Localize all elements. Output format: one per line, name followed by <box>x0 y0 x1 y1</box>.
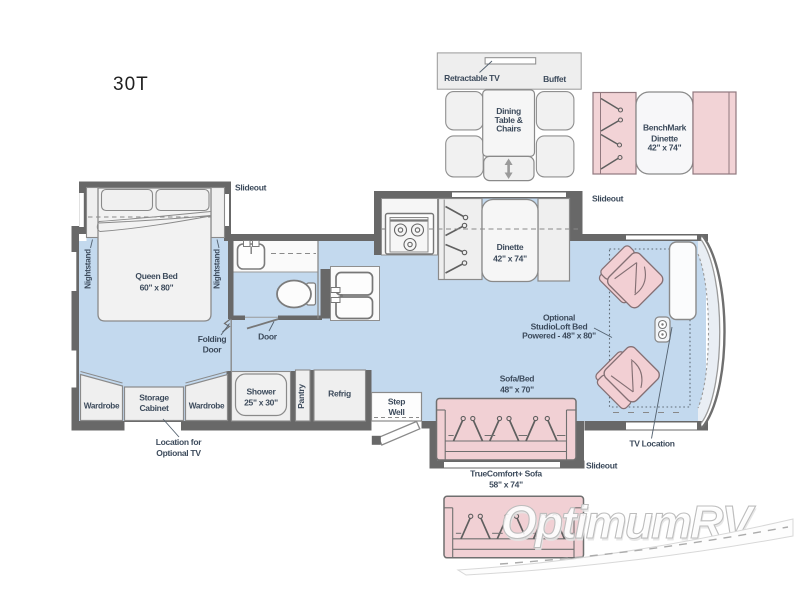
svg-text:25" x 30": 25" x 30" <box>244 398 278 408</box>
svg-text:Powered - 48" x 80": Powered - 48" x 80" <box>522 331 596 341</box>
svg-text:Storage: Storage <box>139 393 169 403</box>
svg-text:Folding: Folding <box>198 334 227 344</box>
svg-text:Door: Door <box>203 345 223 355</box>
svg-text:Location for: Location for <box>156 437 202 447</box>
svg-text:Slideout: Slideout <box>586 461 618 471</box>
svg-text:Pantry: Pantry <box>296 384 306 409</box>
svg-text:Buffet: Buffet <box>543 74 566 84</box>
svg-text:Nightstand: Nightstand <box>84 249 93 289</box>
svg-text:Nightstand: Nightstand <box>213 249 222 289</box>
svg-text:58" x 74": 58" x 74" <box>489 480 523 490</box>
svg-text:Sofa/Bed: Sofa/Bed <box>500 374 535 384</box>
svg-text:Step: Step <box>388 397 405 407</box>
svg-text:42" x 74": 42" x 74" <box>648 143 682 153</box>
svg-text:Dinette: Dinette <box>497 242 524 252</box>
svg-text:TV Location: TV Location <box>629 439 674 449</box>
svg-text:Optional TV: Optional TV <box>156 448 201 458</box>
svg-text:BenchMark: BenchMark <box>643 123 687 133</box>
svg-text:Shower: Shower <box>247 387 277 397</box>
svg-text:60" x 80": 60" x 80" <box>140 283 174 293</box>
svg-text:48" x 70": 48" x 70" <box>500 385 534 395</box>
svg-text:TrueComfort+ Sofa: TrueComfort+ Sofa <box>470 469 542 479</box>
svg-text:30T: 30T <box>113 74 149 95</box>
svg-text:Retractable TV: Retractable TV <box>444 73 500 83</box>
svg-text:Queen Bed: Queen Bed <box>135 271 177 281</box>
svg-text:Door: Door <box>258 332 278 342</box>
svg-text:Slideout: Slideout <box>592 194 624 204</box>
svg-text:Well: Well <box>388 407 404 417</box>
svg-text:Chairs: Chairs <box>496 124 521 134</box>
svg-text:42" x 74": 42" x 74" <box>493 254 527 264</box>
svg-text:Cabinet: Cabinet <box>139 403 169 413</box>
svg-text:Wardrobe: Wardrobe <box>84 402 120 411</box>
svg-text:Wardrobe: Wardrobe <box>189 402 225 411</box>
svg-text:Refrig: Refrig <box>328 389 351 399</box>
svg-text:Slideout: Slideout <box>235 183 267 193</box>
